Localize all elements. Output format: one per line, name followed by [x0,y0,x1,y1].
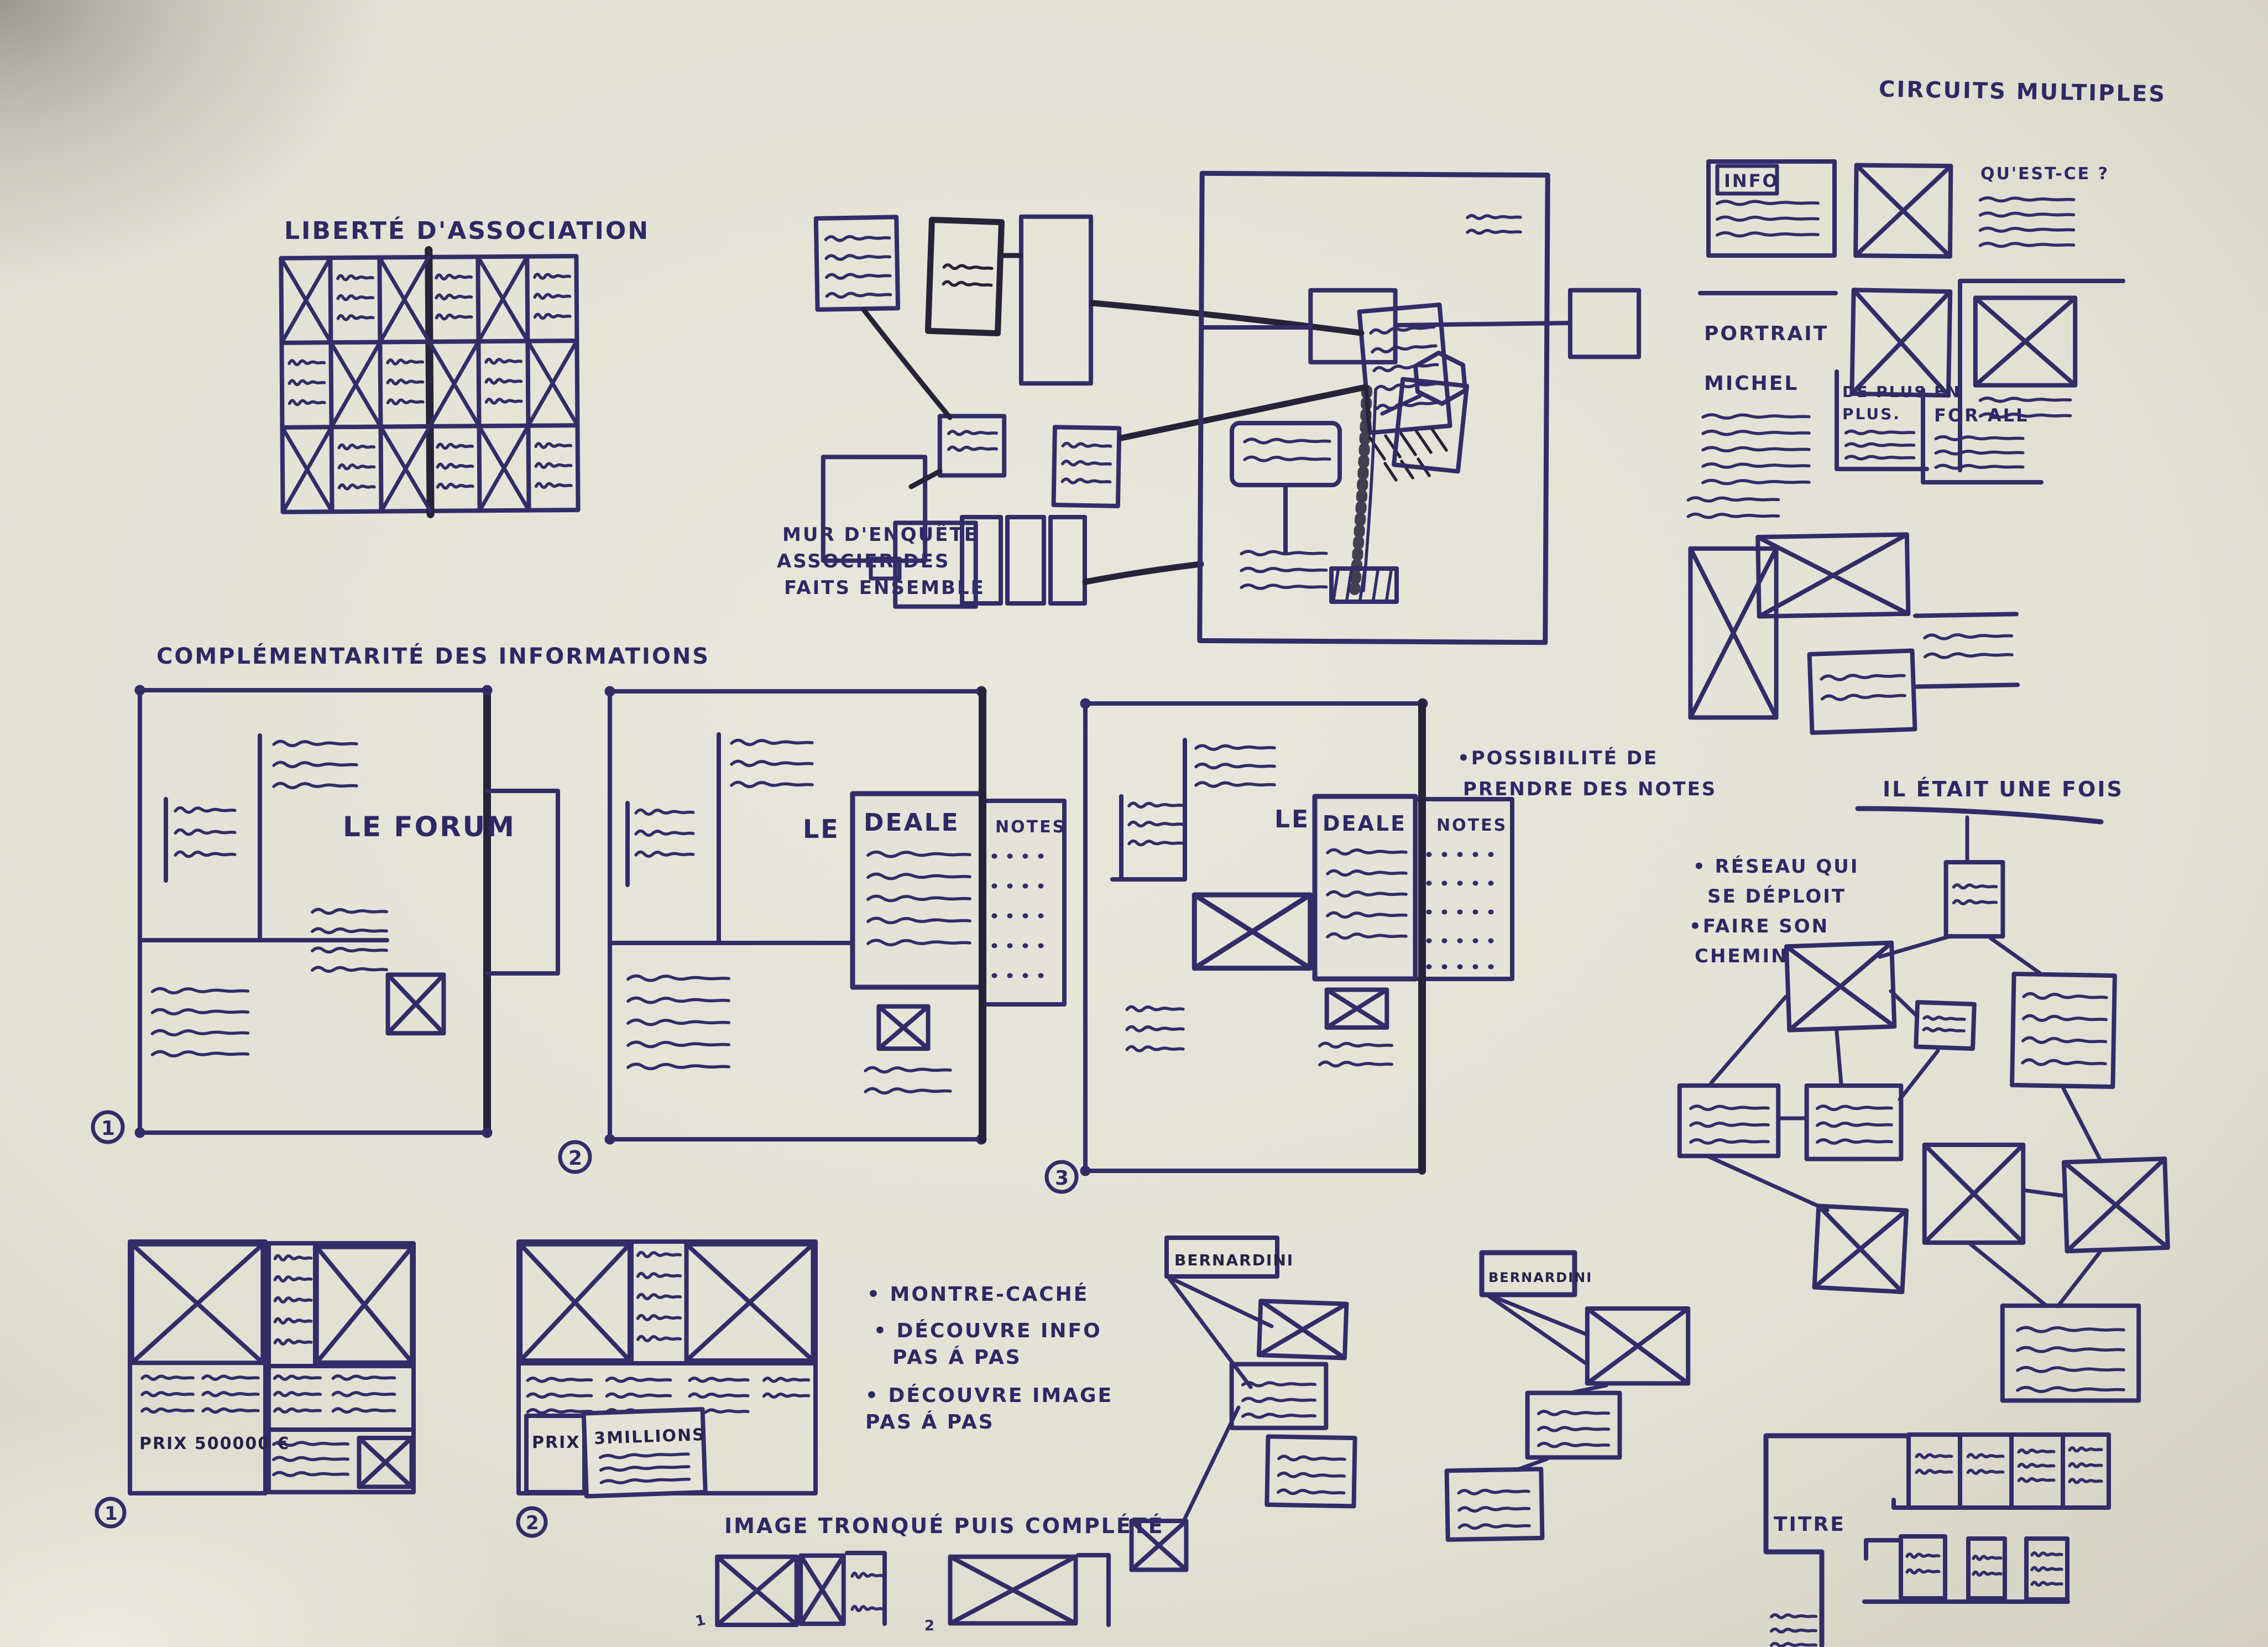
paper-corner-highlight [0,1383,498,1647]
panel2-title: DEALE [864,809,960,837]
panel3-prefix: LE [1274,805,1310,833]
panel2-notes-panel: NOTES [983,801,1066,1004]
panel2-deale-card: DEALE [853,794,983,987]
panel3-notes-label: NOTES [1436,816,1507,835]
question-label: QU'EST-CE ? [1980,164,2109,184]
thumb1-number: 1 [104,1503,119,1525]
circuits-title: CIRCUITS MULTIPLES [1879,76,2167,107]
sketch-paper: LIBERTÉ D'ASSOCIATION [0,0,2268,1647]
iletait-annotation-2: SE DÉPLOIT [1707,885,1846,908]
panel3-title: DEALE [1323,811,1407,836]
iletait-annotation-4: CHEMIN [1695,945,1789,967]
thumb2-number: 2 [526,1512,541,1534]
panel1-number: 1 [101,1117,117,1140]
titre-label: TITRE [1774,1513,1846,1536]
info-label: INFO [1724,170,1779,191]
panel2-notes-label: NOTES [995,817,1066,837]
tronque-label-2: 2 [924,1618,936,1634]
tronque-title: IMAGE TRONQUÉ PUIS COMPLÉTÉ [724,1514,1164,1538]
prix2-amount: 3MILLIONS [594,1425,706,1448]
panel3-deale-card: DEALE [1315,796,1415,979]
iletait-title: IL ÉTAIT UNE FOIS [1883,777,2124,801]
bernardini-label-1: BERNARDINI [1174,1251,1294,1269]
bernardini-label-2: BERNARDINI [1488,1270,1592,1285]
panel3-number: 3 [1055,1167,1070,1190]
bullet-decouvre-image: • DÉCOUVRE IMAGE [865,1384,1113,1407]
panel3-notes-panel: NOTES [1415,799,1512,979]
bullet-decouvre-info: • DÉCOUVRE INFO [874,1319,1102,1342]
deplus-label-line1: DE PLUS EN [1842,383,1961,401]
panel2-number: 2 [568,1147,584,1170]
iletait-annotation-1: • RÉSEAU QUI [1693,855,1859,878]
panel1-title: LE FORUM [343,811,516,843]
bullet-decouvre-info-2: PAS Á PAS [892,1346,1022,1369]
panel2-prefix: LE [803,814,840,844]
thumb2-amount-card: 3MILLIONS [584,1409,708,1497]
liberte-title: LIBERTÉ D'ASSOCIATION [284,216,650,245]
forall-label: FOR ALL [1934,405,2029,426]
panel3-annotation-line2: PRENDRE DES NOTES [1463,778,1717,800]
portrait-label-line2: MICHEL [1704,372,1799,395]
prix2-label: PRIX [532,1433,580,1452]
complementarite-title: COMPLÉMENTARITÉ DES INFORMATIONS [156,643,710,669]
portrait-label-line1: PORTRAIT [1704,322,1828,345]
iletait-annotation-3: •FAIRE SON [1689,915,1829,937]
deplus-label-line2: PLUS. [1842,405,1901,423]
board-string [1397,323,1569,325]
bullet-montre-cache: • MONTRE-CACHÉ [867,1283,1089,1306]
panel3-annotation-line1: •POSSIBILITÉ DE [1457,747,1658,769]
bullet-decouvre-image-2: PAS Á PAS [865,1410,995,1434]
mur-caption-line1: MUR D'ENQUÊTE [782,523,979,546]
